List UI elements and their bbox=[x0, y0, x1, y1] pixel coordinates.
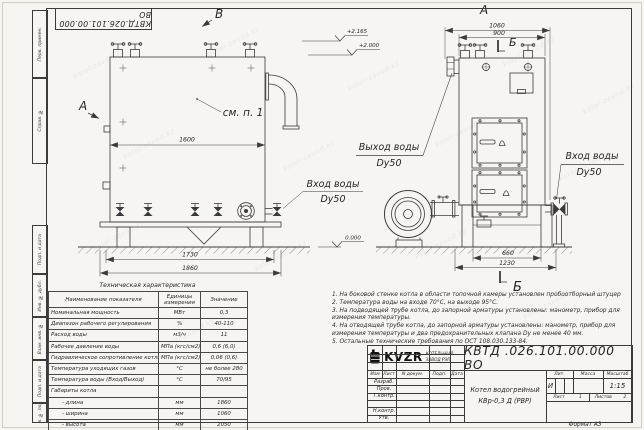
sheet-value: 1 bbox=[579, 395, 582, 400]
spec-row: Диапазон рабочего регулирования%40-110 bbox=[49, 319, 248, 330]
role-tkontr: Т.контр. bbox=[368, 393, 398, 400]
note-item: 4. На отводящей трубе котла, до запорной… bbox=[332, 323, 631, 339]
spec-cell-name: Расход воды bbox=[49, 330, 159, 341]
spec-cell-name: Диапазон рабочего регулирования bbox=[49, 319, 159, 330]
sheet-label: Лист bbox=[553, 395, 565, 400]
role-utv: Утв. bbox=[368, 415, 398, 423]
spec-cell-value: 1060 bbox=[201, 408, 248, 419]
spec-cell-units: мм bbox=[159, 419, 201, 430]
spec-cell-value: 11 bbox=[201, 330, 248, 341]
stamp-inv-dubl: Инв. № дубл. bbox=[32, 273, 48, 318]
product-name: Котел водогрейный КВр-0,3 Д (РВР) bbox=[464, 370, 546, 422]
stamp-label: Инв. № дубл. bbox=[38, 280, 43, 312]
spec-row: Температура уходящих газов°Сне более 280 bbox=[49, 363, 248, 374]
stamp-sprav-no: Справ. № bbox=[32, 77, 48, 164]
doc-number: КВТД .026.101.00.000 ВО bbox=[464, 346, 632, 370]
col-podp: Подп. bbox=[429, 370, 450, 378]
spec-cell-units: °С bbox=[159, 363, 201, 374]
spec-cell-name: Гидравлическое сопротивление котла bbox=[49, 352, 159, 363]
spec-cell-value: 0,6 (6,0) bbox=[201, 341, 248, 352]
format-label: Формат А3 bbox=[550, 422, 620, 428]
spec-cell-units: % bbox=[159, 319, 201, 330]
note-item: 3. На подводящей трубе котла, до запорно… bbox=[332, 308, 631, 324]
stamp-label: Перв. примен. bbox=[38, 27, 43, 62]
stamp-label: Подп. и дата bbox=[38, 234, 43, 265]
spec-cell-name: Температура уходящих газов bbox=[49, 363, 159, 374]
role-prov: Пров. bbox=[368, 385, 398, 392]
spec-row: - длинамм1860 bbox=[49, 397, 248, 408]
spec-cell-name: - длина bbox=[49, 397, 159, 408]
stamp-vzam-inv: Взам. инв. № bbox=[32, 316, 48, 361]
spec-cell-name: Габариты котла bbox=[49, 386, 159, 397]
top-doc-number-stamp: КВТД.026.101.00.000 ВО bbox=[55, 8, 152, 30]
spec-cell-name: Номинальная мощность bbox=[49, 308, 159, 319]
product-name-line2: КВр-0,3 Д (РВР) bbox=[478, 396, 531, 407]
mass-label: Масса bbox=[573, 370, 603, 378]
role-blank bbox=[368, 400, 398, 407]
sheets-label: Листов bbox=[595, 395, 612, 400]
stamp-label: Подп. и дата bbox=[38, 366, 43, 397]
spec-cell-units: МВт bbox=[159, 308, 201, 319]
lit-label: Лит. bbox=[546, 370, 573, 378]
col-data: Дата bbox=[450, 370, 464, 378]
spec-table: Наименование показателя Единицы измерени… bbox=[48, 291, 248, 430]
col-ndokum: N докум. bbox=[396, 370, 429, 378]
role-razrab: Разраб. bbox=[368, 378, 398, 385]
scale-value: 1:15 bbox=[603, 378, 632, 393]
role-nkontr: Н.контр. bbox=[368, 407, 398, 414]
spec-row: Номинальная мощностьМВт0,3 bbox=[49, 308, 248, 319]
spec-cell-name: Температура воды (Вход/Выход) bbox=[49, 375, 159, 386]
company-logo-block: KVZR КОТЕЛЬНЫЙ ЗАВОД РЭП bbox=[368, 346, 454, 367]
spec-cell-units: м3/ч bbox=[159, 330, 201, 341]
spec-table-title: Техническая характеристика bbox=[48, 282, 247, 289]
spec-header-row: Наименование показателя Единицы измерени… bbox=[49, 292, 248, 308]
note-item: 2. Температура воды на входе 70°С, на вы… bbox=[332, 300, 631, 308]
spec-cell-value: 70/95 bbox=[201, 375, 248, 386]
stamp-label: Взам. инв. № bbox=[38, 323, 43, 354]
spec-cell-units: мм bbox=[159, 397, 201, 408]
spec-cell-value: 2050 bbox=[201, 419, 248, 430]
spec-cell-value: 1860 bbox=[201, 397, 248, 408]
product-name-line1: Котел водогрейный bbox=[470, 385, 539, 396]
spec-col-units-line2: измерения bbox=[161, 300, 198, 306]
spec-col-name: Наименование показателя bbox=[49, 292, 159, 308]
spec-cell-name: - высота bbox=[49, 419, 159, 430]
spec-col-units: Единицы измерения bbox=[159, 292, 201, 308]
spec-cell-units bbox=[159, 386, 201, 397]
spec-cell-units: мм bbox=[159, 408, 201, 419]
top-doc-number-text: КВТД.026.101.00.000 ВО bbox=[56, 10, 151, 28]
lit-value: И bbox=[546, 378, 555, 393]
spec-col-value: Значение bbox=[201, 292, 248, 308]
scale-label: Масштаб bbox=[603, 370, 632, 378]
spec-row: Гидравлическое сопротивление котлаМПа (к… bbox=[49, 352, 248, 363]
spec-cell-units: МПа (кгс/см2) bbox=[159, 352, 201, 363]
spec-cell-units: МПа (кгс/см2) bbox=[159, 341, 201, 352]
spec-cell-name: Рабочее давление воды bbox=[49, 341, 159, 352]
spec-row: Расход водым3/ч11 bbox=[49, 330, 248, 341]
drawing-sheet: kotel-zavod.kz kotel-zavod.kz kotel-zavo… bbox=[0, 0, 644, 430]
spec-cell-units: °С bbox=[159, 375, 201, 386]
note-item: 1. На боковой стенке котла в области топ… bbox=[332, 292, 631, 300]
sheets-cell: Листов 2 bbox=[589, 393, 632, 401]
spec-row: Габариты котла bbox=[49, 386, 248, 397]
spec-cell-name: - ширина bbox=[49, 408, 159, 419]
stamp-label: Справ. № bbox=[38, 109, 43, 132]
spec-row: Температура воды (Вход/Выход)°С70/95 bbox=[49, 375, 248, 386]
spec-cell-value: 0,3 bbox=[201, 308, 248, 319]
spec-cell-value bbox=[201, 386, 248, 397]
stamp-podp-data-2: Подп. и дата bbox=[32, 359, 48, 404]
col-izm: Изм bbox=[368, 370, 382, 378]
technical-notes: 1. На боковой стенке котла в области топ… bbox=[332, 292, 631, 346]
stamp-label: Инв. № подл. bbox=[38, 402, 43, 423]
stamp-inv-podl: Инв. № подл. bbox=[32, 402, 48, 423]
spec-cell-value: не более 280 bbox=[201, 363, 248, 374]
sheets-value: 2 bbox=[623, 395, 626, 400]
stamp-podp-data-1: Подп. и дата bbox=[32, 225, 48, 275]
title-block: КВТД .026.101.00.000 ВО Котел водогрейны… bbox=[367, 345, 633, 423]
spec-row: - ширинамм1060 bbox=[49, 408, 248, 419]
spec-row: - высотамм2050 bbox=[49, 419, 248, 430]
stamp-perv-primen: Перв. примен. bbox=[32, 10, 48, 79]
spec-cell-value: 0,06 (0,6) bbox=[201, 352, 248, 363]
spec-cell-value: 40-110 bbox=[201, 319, 248, 330]
sheet-cell: Лист 1 bbox=[546, 393, 589, 401]
spec-row: Рабочее давление водыМПа (кгс/см2)0,6 (6… bbox=[49, 341, 248, 352]
col-list: Лист bbox=[382, 370, 396, 378]
